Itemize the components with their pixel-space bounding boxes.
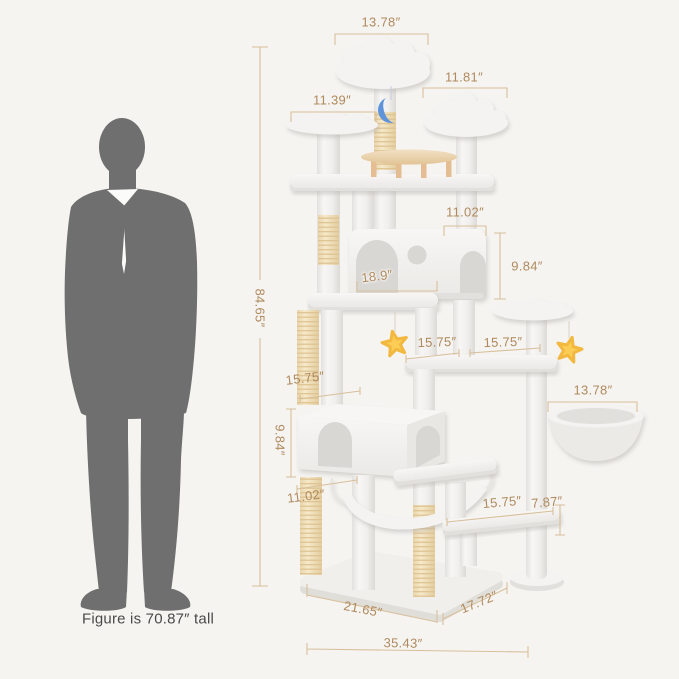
dim-mid-right-width: 15.75″ [483,335,522,349]
mid-left-sisal-texture [297,310,319,405]
mid-left-white-post [321,310,343,405]
condo-platform [308,293,438,310]
right-cloud-perch [424,92,508,137]
dim-condo-height: 9.84″ [511,260,542,273]
figure-caption: Figure is 70.87″ tall [82,611,214,628]
dim-basket-width: 13.78″ [574,384,613,397]
mid-platform-top [405,355,557,369]
basket-interior [557,408,635,424]
left-perch-bump [344,115,368,126]
dimline-lower-condo-height [286,409,296,477]
product-dimension-diagram: 13.78″ 11.81″ 11.39″ 84.65″ 11.02″ 9.84″… [0,0,679,679]
lower-condo-arch-front [318,422,352,468]
left-perch-sisal-texture [318,215,339,265]
silhouette-neck [109,158,136,192]
dim-base-total-width: 35.43″ [383,636,422,650]
dim-total-height: 84.65″ [254,289,267,328]
rail-top-board [361,150,457,165]
lower-white-post [352,475,375,590]
rail-peg [396,162,402,178]
silhouette-leg-right [141,410,184,592]
dim-right-cloud-width: 11.81″ [445,71,483,84]
top-right-perch [493,299,573,321]
silhouette-shoe-left [81,589,127,611]
left-perch-post [317,128,340,298]
star-icon [554,334,584,363]
left-perch-bump [291,114,317,126]
right-perch-bump [544,302,566,312]
silhouette-shoe-right [144,589,190,611]
condo-left-post [352,190,374,232]
condo-arch-right [460,251,486,296]
dim-bottom-platform-width: 15.75″ [482,494,522,510]
left-perch [286,111,378,135]
star-toy-left [380,312,409,357]
condo-peek-hole [408,246,427,265]
star-icon [380,329,409,357]
wooden-rail [361,150,457,179]
rail-peg [421,163,427,178]
dimline-condo-height [494,233,506,299]
upper-wide-platform-top [290,174,494,188]
dim-lower-condo-height: 9.84″ [274,424,287,455]
dim-bottom-right-height: 7.87″ [531,494,563,510]
dim-condo-top-width: 11.02″ [446,206,484,219]
dim-top-cloud-width: 13.78″ [362,16,401,29]
top-cloud-perch [336,35,430,89]
mid-center-post [415,308,437,358]
dim-left-perch-width: 11.39″ [313,94,351,107]
mid-posts [297,300,475,405]
dim-condo-inner-width: 18.9″ [361,268,394,285]
lower-condo-front [298,417,407,477]
upper-wide-platform [290,174,494,191]
right-perch-bump [500,301,524,311]
cat-tree [286,35,644,617]
dim-mid-left-width: 15.75″ [417,335,456,349]
hanging-basket [548,405,644,462]
star-toy-right [554,321,584,363]
right-perch-bump [521,299,547,310]
rail-peg [371,160,377,177]
lower-condo [298,404,445,477]
cloud-bump [406,52,430,76]
human-silhouette [65,118,198,611]
rail-peg [446,160,452,177]
condo-platform-top [308,293,438,307]
silhouette-leg-left [86,410,129,592]
upper-condo [349,229,486,299]
cloud-bump [488,110,506,128]
